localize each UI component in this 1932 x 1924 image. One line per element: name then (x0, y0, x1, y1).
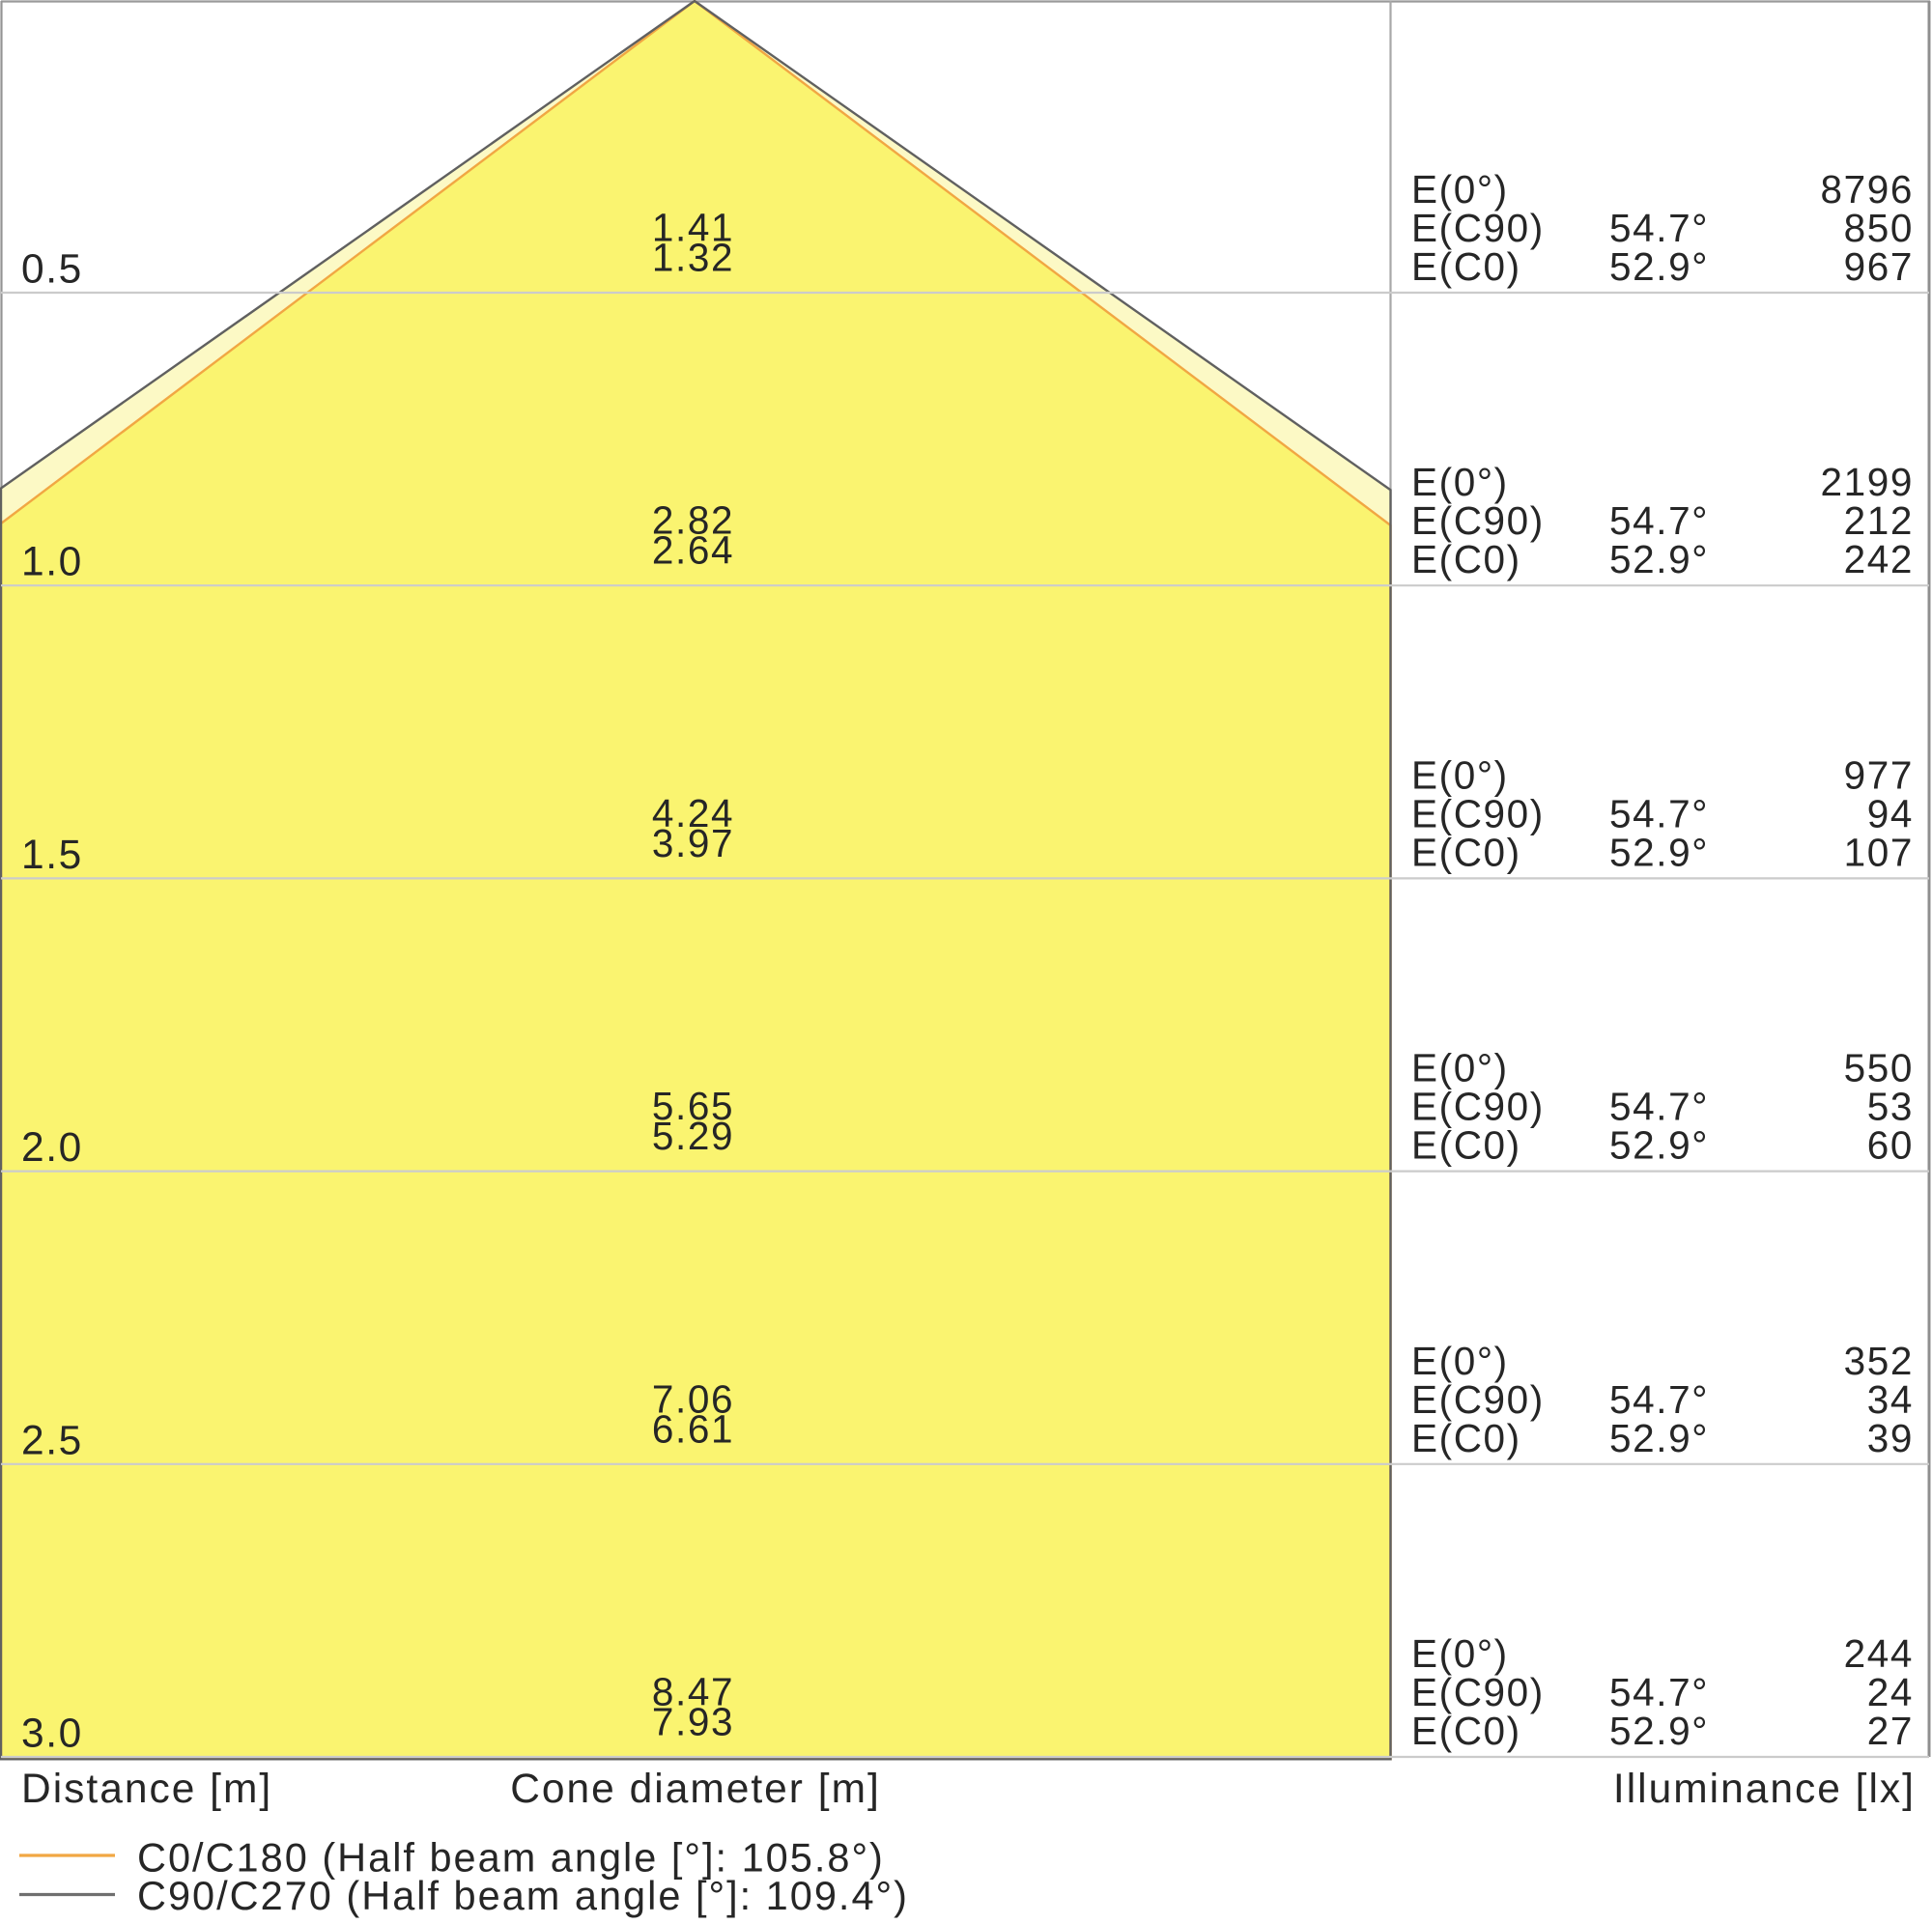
svg-text:1.0: 1.0 (21, 540, 83, 585)
svg-text:0.5: 0.5 (21, 247, 83, 293)
svg-text:52.9°: 52.9° (1609, 244, 1709, 289)
svg-text:1.5: 1.5 (21, 833, 83, 878)
svg-text:60: 60 (1867, 1123, 1914, 1168)
svg-text:E(C0): E(C0) (1411, 1709, 1521, 1753)
svg-text:52.9°: 52.9° (1609, 1416, 1709, 1460)
svg-text:52.9°: 52.9° (1609, 1709, 1709, 1753)
svg-text:1.32: 1.32 (652, 236, 734, 280)
svg-text:C90/C270 (Half beam angle [°]:: C90/C270 (Half beam angle [°]: 109.4°) (137, 1873, 909, 1918)
svg-text:107: 107 (1844, 830, 1914, 874)
svg-text:Distance [m]: Distance [m] (21, 1767, 272, 1812)
svg-text:39: 39 (1867, 1416, 1914, 1460)
svg-text:E(C0): E(C0) (1411, 244, 1521, 289)
svg-text:52.9°: 52.9° (1609, 537, 1709, 581)
svg-text:242: 242 (1844, 537, 1914, 581)
svg-text:2.64: 2.64 (652, 528, 734, 573)
svg-text:3.97: 3.97 (652, 821, 734, 865)
svg-text:2.5: 2.5 (21, 1418, 83, 1463)
svg-text:E(C0): E(C0) (1411, 537, 1521, 581)
svg-text:E(C0): E(C0) (1411, 1416, 1521, 1460)
svg-text:Illuminance [lx]: Illuminance [lx] (1613, 1767, 1916, 1812)
svg-text:27: 27 (1867, 1709, 1914, 1753)
svg-text:52.9°: 52.9° (1609, 1123, 1709, 1168)
svg-text:5.29: 5.29 (652, 1114, 734, 1158)
svg-text:E(C0): E(C0) (1411, 1123, 1521, 1168)
svg-text:2.0: 2.0 (21, 1125, 83, 1171)
svg-text:967: 967 (1844, 244, 1914, 289)
svg-text:Cone diameter [m]: Cone diameter [m] (510, 1767, 881, 1812)
svg-text:52.9°: 52.9° (1609, 830, 1709, 874)
svg-text:6.61: 6.61 (652, 1406, 734, 1451)
svg-text:7.93: 7.93 (652, 1700, 734, 1744)
svg-text:E(C0): E(C0) (1411, 830, 1521, 874)
svg-text:3.0: 3.0 (21, 1712, 83, 1757)
